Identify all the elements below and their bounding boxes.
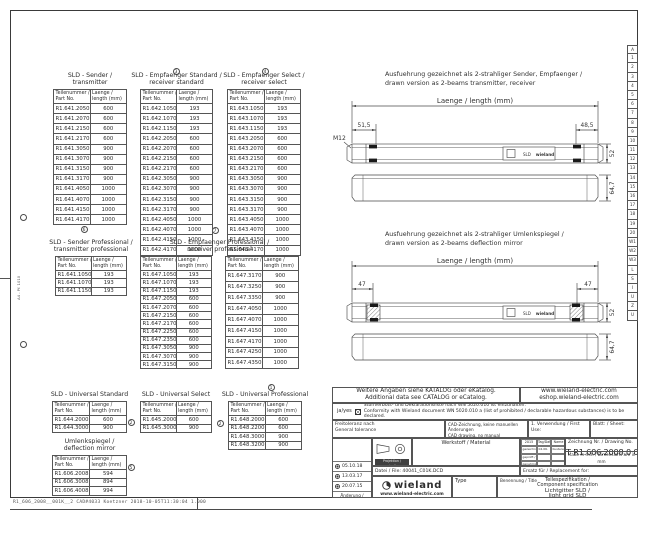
table-row: R1.647.4150.01000 (226, 325, 299, 336)
signature-grid-cell: 04.06. (537, 446, 551, 453)
part-no-cell: R1.643.4070.0 (228, 225, 265, 235)
length-header: Laenge /length (mm) (176, 402, 212, 416)
length-cell: 600 (176, 328, 212, 336)
drawing1-dim-left: 51,5 (358, 123, 371, 129)
table-title-de: SLD - Sender / (68, 72, 112, 79)
part-no-cell: R1.641.1150.0 (56, 287, 92, 295)
part-no-cell: R1.644.3000.0 (53, 424, 90, 433)
drawing1-thread-label: M12 (333, 135, 346, 142)
table-row: R1.647.4250.01000 (226, 347, 299, 358)
length-header: Laenge /length (mm) (176, 257, 212, 271)
part-no-cell: R1.647.1050.0 (141, 271, 177, 279)
circled-ref-marker: 5 (128, 464, 135, 471)
table-row: R1.641.4150.01000 (54, 205, 127, 215)
length-cell: 900 (176, 424, 212, 433)
length-cell: 193 (264, 114, 301, 124)
part-no-cell: R1.641.4170.0 (54, 215, 91, 225)
drawing1-note-de: Ausfuehrung gezeichnet als 2-strahliger … (385, 71, 583, 78)
part-no-cell: R1.642.3150.0 (141, 195, 177, 205)
drawing2-dim-left: 47 (358, 282, 366, 288)
projection-cell: Projektion / projection (372, 438, 412, 466)
plate-brand-label: wieland (536, 152, 554, 157)
table-row: R1.647.2050.0600 (141, 295, 212, 303)
part-no-cell: R1.643.2150.0 (228, 154, 265, 164)
beam-window-icon (369, 159, 377, 163)
revision-row: 13.03.17 (333, 471, 371, 481)
cad-note-de: CAD-Zeichnung, keine manuellen Änderunge… (448, 422, 525, 433)
table-row: R1.643.4070.01000 (228, 225, 301, 235)
table-sld-universal-professional: SLD - Universal Professional Teilenummer… (228, 401, 302, 450)
transmitter-receiver-drawing: Ausfuehrung gezeichnet als 2-strahliger … (333, 63, 638, 215)
margin-format-label: A4 - Pf. 1010 (16, 276, 21, 300)
length-cell: 600 (176, 295, 212, 303)
part-no-cell: R1.641.4150.0 (54, 205, 91, 215)
table-row: R1.643.2070.0600 (228, 144, 301, 154)
table-row: R1.606.4008.0994 (53, 487, 127, 496)
part-no-cell: R1.642.2070.0 (141, 144, 177, 154)
length-header: Laenge /length (mm) (265, 402, 302, 416)
plate-brand-label: wieland (536, 311, 554, 316)
first-angle-projection-icon (373, 440, 411, 458)
length-cell: 594 (90, 470, 127, 479)
length-cell: 600 (177, 134, 213, 144)
table-title-de: SLD - Empfaenger Professional / (170, 239, 269, 246)
length-cell: 193 (91, 287, 127, 295)
table-row: R1.642.3170.0900 (141, 205, 213, 215)
wieland-logo-icon (382, 481, 391, 490)
length-cell: 900 (262, 293, 299, 304)
length-cell: 900 (264, 195, 301, 205)
beam-window-icon (573, 159, 581, 163)
table-row: R1.642.4070.01000 (141, 225, 213, 235)
file-cell: Datei / File: 40041_C01K.DCD (372, 466, 520, 476)
length-cell: 1000 (262, 314, 299, 325)
circled-ref-marker: 6 (81, 226, 88, 233)
punch-hole-bottom (20, 341, 27, 348)
table-row: R1.643.1070.0193 (228, 114, 301, 124)
table-row: R1.642.2050.0600 (141, 134, 213, 144)
signature-grid-header: 2015 (521, 439, 537, 446)
table-row: R1.641.2050.0600 (54, 104, 127, 114)
part-no-cell: R1.642.3170.0 (141, 205, 177, 215)
table-title: SLD - Empfaenger Standard / receiver sta… (131, 72, 221, 86)
part-no-cell: R1.643.3070.0 (228, 184, 265, 194)
length-cell: 1000 (264, 245, 301, 255)
length-cell: 900 (265, 433, 302, 442)
length-cell: 1000 (90, 215, 127, 225)
part-no-header: Teilenummer /Part No. (226, 257, 263, 271)
drawing1-length-label: Laenge / length (mm) (437, 97, 513, 105)
length-header: Laenge /length (mm) (91, 257, 127, 271)
length-cell: 600 (264, 144, 301, 154)
part-no-cell: R1.641.3170.0 (54, 174, 91, 184)
part-no-cell: R1.641.1070.0 (56, 279, 92, 287)
drawing2-dim-right: 47 (584, 282, 592, 288)
part-no-cell: R1.643.3170.0 (228, 205, 265, 215)
revision-row: 20.07.15 (333, 481, 371, 491)
length-cell: 900 (177, 184, 213, 194)
table-title-en: receiver select (223, 79, 304, 86)
drawing-number-cell: Zeichnung Nr. / Drawing No. T R1.606.200… (565, 438, 638, 466)
tolerance-cell: Freitoleranz nach General tolerance (332, 420, 445, 438)
wieland-logo-url: www.wieland-electric.com (373, 492, 451, 497)
revision-date: 20.07.15 (342, 484, 362, 489)
table-row: R1.647.3250.0900 (226, 282, 299, 293)
part-no-header: Teilenummer /Part No. (54, 90, 91, 104)
table-title: SLD - Sender / transmitter (68, 72, 112, 86)
table-row: R1.644.3000.0900 (53, 424, 127, 433)
revision-column: 05.10.1813.03.1720.07.15 Änderung / Revi… (332, 438, 372, 498)
drawing1-note-en: drawn version as 2-beams transmitter, re… (385, 80, 536, 87)
index-strip-cell: A (627, 45, 638, 54)
circled-ref-marker: 2 (128, 419, 135, 426)
material-label: Werkstoff / Material (413, 440, 519, 446)
table-title: SLD - Sender Professional / transmitter … (49, 239, 132, 253)
length-cell: 900 (265, 441, 302, 450)
signature-grid-header: Name (551, 439, 565, 446)
table-title: SLD - Empfaenger Select / receiver selec… (223, 72, 304, 86)
length-cell: 1000 (262, 358, 299, 369)
length-cell: 900 (262, 271, 299, 282)
table-row: R1.641.1070.0193 (56, 279, 127, 287)
tolerance-en: General tolerance (335, 428, 442, 434)
part-no-cell: R1.642.3050.0 (141, 174, 177, 184)
part-no-cell: R1.647.3050.0 (141, 344, 177, 352)
part-no-cell: R1.643.2070.0 (228, 144, 265, 154)
part-no-cell: R1.647.4050.0 (226, 303, 263, 314)
table-row: R1.641.1050.0193 (56, 271, 127, 279)
table-row: R1.642.3050.0900 (141, 174, 213, 184)
table-sld-receiver-standard: SLD - Empfaenger Standard / receiver sta… (140, 89, 213, 256)
part-no-cell: R1.606.4008.0 (53, 487, 90, 496)
table-row: R1.645.2000.0600 (141, 416, 212, 425)
checkbox-checked-icon (355, 409, 361, 415)
table-row: R1.641.2150.0600 (54, 124, 127, 134)
beam-window-icon (370, 304, 378, 307)
part-no-cell: R1.647.2150.0 (141, 312, 177, 320)
revision-date: 13.03.17 (342, 474, 362, 479)
table-row: R1.643.2150.0600 (228, 154, 301, 164)
part-no-cell: R1.644.2000.0 (53, 416, 90, 425)
length-cell: 1000 (177, 225, 213, 235)
eshop-url: eshop.wieland-electric.com (521, 395, 637, 402)
table-sld-receiver-select: SLD - Empfaenger Select / receiver selec… (227, 89, 301, 256)
table-title-de: Umlenkspiegel / (64, 438, 116, 445)
part-no-cell: R1.647.4250.0 (226, 347, 263, 358)
part-no-header: Teilenummer /Part No. (229, 402, 266, 416)
drawing2-height-dim: 52 (610, 309, 616, 317)
beam-window-icon (369, 145, 377, 149)
part-no-cell: R1.641.2170.0 (54, 134, 91, 144)
part-no-cell: R1.643.1050.0 (228, 104, 265, 114)
urls-cell: www.wieland-electric.com eshop.wieland-e… (520, 387, 638, 403)
part-no-cell: R1.647.3250.0 (226, 282, 263, 293)
part-no-cell: R1.648.3000.0 (229, 433, 266, 442)
length-cell: 994 (90, 487, 127, 496)
replacement-cell: Ersatz für / Replacement for: (520, 466, 638, 476)
part-no-cell: R1.643.3050.0 (228, 174, 265, 184)
table-row: R1.641.1150.0193 (56, 287, 127, 295)
table-row: R1.642.1150.0193 (141, 124, 213, 134)
part-no-cell: R1.647.4150.0 (226, 325, 263, 336)
drawing2-note-de: Ausfuehrung gezeichnet als 2-strahliger … (385, 231, 565, 238)
plot-footer-text: R1_606_2008__001K__2 CAD#4033 Koetzner 2… (13, 500, 206, 505)
part-no-cell: R1.642.1070.0 (141, 114, 177, 124)
table-row: R1.641.4170.01000 (54, 215, 127, 225)
part-no-cell: R1.642.2170.0 (141, 164, 177, 174)
length-cell: 894 (90, 478, 127, 487)
revision-date: 05.10.18 (342, 464, 362, 469)
circled-ref-marker: 2 (217, 420, 224, 427)
part-no-cell: R1.642.1050.0 (141, 104, 177, 114)
part-no-cell: R1.641.3050.0 (54, 144, 91, 154)
length-cell: 600 (265, 424, 302, 433)
table-sld-receiver-professional: SLD - Empfaenger Professional / receiver… (140, 256, 299, 369)
table-row: R1.642.3070.0900 (141, 184, 213, 194)
table-row: R1.643.2050.0600 (228, 134, 301, 144)
logo-cell: wieland www.wieland-electric.com (372, 476, 452, 498)
conformity-row: ja/yes Stoffverbots- und Deklarationslis… (332, 403, 638, 420)
drawing-number-label: Zeichnung Nr. / Drawing No. (566, 439, 637, 446)
part-no-cell: R1.647.2170.0 (141, 320, 177, 328)
table-row: R1.641.2070.0600 (54, 114, 127, 124)
length-cell: 600 (265, 416, 302, 425)
table-row: R1.642.2070.0600 (141, 144, 213, 154)
length-cell: 600 (176, 312, 212, 320)
table-row: R1.647.3070.0900 (141, 353, 212, 361)
length-cell: 900 (90, 154, 127, 164)
table-row: R1.641.2170.0600 (54, 134, 127, 144)
length-header: Laenge /length (mm) (90, 402, 127, 416)
part-no-header: Teilenummer /Part No. (141, 257, 177, 271)
table-title: SLD - Universal Select (142, 391, 210, 398)
table-sld-sender-professional: SLD - Sender Professional / transmitter … (55, 256, 127, 296)
part-no-cell: R1.641.2150.0 (54, 124, 91, 134)
part-no-cell: R1.642.4070.0 (141, 225, 177, 235)
table-title-de: SLD - Universal Professional (222, 391, 308, 398)
index-strip-cell: 1 (627, 54, 638, 63)
table-row: R1.643.2170.0600 (228, 164, 301, 174)
signature-grid-cell: gezeichnet / drawn (521, 446, 537, 453)
length-header: Laenge /length (mm) (262, 257, 299, 271)
length-cell: 900 (90, 424, 127, 433)
part-no-cell: R1.642.2150.0 (141, 154, 177, 164)
part-no-cell: R1.647.3170.0 (226, 271, 263, 282)
length-cell: 900 (90, 144, 127, 154)
table-row: R1.647.4070.01000 (226, 314, 299, 325)
table-sld-universal-select: SLD - Universal Select Teilenummer /Part… (140, 401, 212, 433)
length-cell: 600 (176, 416, 212, 425)
length-cell: 900 (90, 164, 127, 174)
file-label: Datei / File: 40041_C01K.DCD (375, 469, 443, 474)
length-cell: 1000 (264, 215, 301, 225)
length-cell: 600 (177, 154, 213, 164)
part-no-cell: R1.648.2200.0 (229, 424, 266, 433)
part-no-cell: R1.647.2350.0 (141, 336, 177, 344)
table-title: SLD - Universal Standard (51, 391, 128, 398)
drawing1-dim-right: 48,5 (581, 123, 594, 129)
part-no-cell: R1.643.2170.0 (228, 164, 265, 174)
length-cell: 900 (262, 282, 299, 293)
length-cell: 1000 (90, 184, 127, 194)
table-title-en: deflection mirror (64, 445, 116, 452)
length-cell: 900 (177, 174, 213, 184)
part-no-cell: R1.648.3200.0 (229, 441, 266, 450)
table-row: R1.647.1150.0193 (141, 287, 212, 295)
table-row: R1.647.3170.0900 (226, 271, 299, 282)
part-no-cell: R1.647.2250.0 (141, 328, 177, 336)
part-no-cell: R1.606.3008.0 (53, 478, 90, 487)
table-row: R1.647.2070.0600 (141, 303, 212, 311)
table-row: R1.642.1050.0193 (141, 104, 213, 114)
table-row: R1.643.3150.0900 (228, 195, 301, 205)
signature-grid: 2015Tag/DateNamegezeichnet / drawn04.06.… (520, 438, 565, 466)
table-row: R1.648.3200.0900 (229, 441, 302, 450)
signature-grid-cell: geprüft / checked (521, 454, 537, 461)
table-title-de: SLD - Universal Standard (51, 391, 128, 398)
length-cell: 193 (177, 114, 213, 124)
length-cell: 600 (264, 154, 301, 164)
first-use-label: 1. Verwendung / First Use: (531, 422, 587, 434)
table-row: R1.641.4050.01000 (54, 184, 127, 194)
length-cell: 600 (264, 134, 301, 144)
table-title-en: transmitter (68, 79, 112, 86)
length-cell: 1000 (177, 215, 213, 225)
part-no-cell: R1.643.2050.0 (228, 134, 265, 144)
table-row: R1.645.3000.0900 (141, 424, 212, 433)
part-no-cell: R1.643.1150.0 (228, 124, 265, 134)
part-no-header: Teilenummer /Part No. (141, 402, 177, 416)
length-cell: 1000 (90, 205, 127, 215)
part-no-header: Teilenummer /Part No. (56, 257, 92, 271)
table-row: R1.647.4050.01000 (226, 303, 299, 314)
part-no-cell: R1.647.3150.0 (141, 361, 177, 369)
beam-window-icon (573, 145, 581, 149)
table-row: R1.647.2150.0600 (141, 312, 212, 320)
part-no-cell: R1.647.4170.0 (226, 336, 263, 347)
revision-caption: Änderung / Revision (333, 491, 371, 498)
table-row: R1.643.3170.0900 (228, 205, 301, 215)
catalog-note-cell: Weitere Angaben siehe KATALOG oder eKata… (332, 387, 520, 403)
first-use-cell: 1. Verwendung / First Use: (528, 420, 590, 438)
table-title: SLD - Empfaenger Professional / receiver… (170, 239, 269, 253)
length-cell: 600 (176, 303, 212, 311)
revision-row: 05.10.18 (333, 461, 371, 471)
length-cell: 1000 (264, 225, 301, 235)
catalog-note-de: Weitere Angaben siehe KATALOG oder eKata… (333, 388, 519, 395)
part-no-cell: R1.647.2050.0 (141, 295, 177, 303)
table-row: R1.641.4070.01000 (54, 195, 127, 205)
beam-window-icon (572, 304, 580, 307)
part-no-cell: R1.645.2000.0 (141, 416, 177, 425)
part-no-cell: R1.641.3150.0 (54, 164, 91, 174)
part-no-cell: R1.647.4070.0 (226, 314, 263, 325)
length-cell: 1000 (262, 336, 299, 347)
length-cell: 600 (90, 416, 127, 425)
drawing2-length-label: Laenge / length (mm) (437, 257, 513, 265)
material-cell: Werkstoff / Material (412, 438, 520, 466)
title-label: Benennung / Title (500, 478, 537, 483)
length-cell: 600 (90, 114, 127, 124)
part-no-header: Teilenummer /Part No. (141, 90, 177, 104)
table-row: R1.647.1070.0193 (141, 279, 212, 287)
part-no-header: Teilenummer /Part No. (53, 402, 90, 416)
table-title: Umlenkspiegel / deflection mirror (64, 438, 116, 452)
table-title-de: SLD - Empfaenger Standard / (131, 72, 221, 79)
length-cell: 193 (264, 124, 301, 134)
plate-type-label: SLD (523, 311, 531, 316)
part-no-cell: R1.647.1150.0 (141, 287, 177, 295)
sheet-cell: Blatt: / Sheet: (590, 420, 638, 438)
table-row: R1.648.2200.0600 (229, 424, 302, 433)
table-row: R1.647.4350.01000 (226, 358, 299, 369)
cad-note-cell: CAD-Zeichnung, keine manuellen Änderunge… (445, 420, 528, 438)
projection-label: Projektion / projection (375, 459, 409, 466)
length-cell: 193 (177, 124, 213, 134)
table-row: R1.647.4170.01000 (226, 336, 299, 347)
length-cell: 600 (176, 320, 212, 328)
plate-type-label: SLD (523, 152, 531, 157)
length-cell: 900 (177, 195, 213, 205)
part-no-cell: R1.647.2070.0 (141, 303, 177, 311)
wieland-logo: wieland (373, 480, 451, 491)
part-no-cell: R1.641.4050.0 (54, 184, 91, 194)
catalog-note-en: Additional data see CATALOG or eCatalog. (333, 395, 519, 402)
length-header: Laenge /length (mm) (264, 90, 301, 104)
revision-mark-icon (335, 464, 340, 469)
table-row: R1.647.3150.0900 (141, 361, 212, 369)
length-cell: 900 (90, 174, 127, 184)
table-row: R1.641.3050.0900 (54, 144, 127, 154)
signature-grid-header: Tag/Date (537, 439, 551, 446)
table-row: R1.641.3070.0900 (54, 154, 127, 164)
length-cell: 1000 (90, 195, 127, 205)
table-deflection-mirror: Umlenkspiegel / deflection mirror Teilen… (52, 455, 127, 496)
length-cell: 193 (176, 279, 212, 287)
length-cell: 193 (176, 287, 212, 295)
table-row: R1.642.3150.0900 (141, 195, 213, 205)
part-no-cell: R1.647.4350.0 (226, 358, 263, 369)
length-cell: 900 (177, 205, 213, 215)
drawing1-depth-dim: 64,7 (610, 181, 616, 194)
revision-mark-icon (335, 484, 340, 489)
part-no-header: Teilenummer /Part No. (228, 90, 265, 104)
revision-rows: 05.10.1813.03.1720.07.15 (333, 461, 371, 491)
part-no-header: Teilenummer /Part No. (53, 456, 90, 470)
length-cell: 900 (176, 344, 212, 352)
signature-grid-cell (551, 454, 565, 461)
table-title-en: receiver professional (170, 246, 269, 253)
length-cell: 600 (177, 144, 213, 154)
beam-window-icon (370, 318, 378, 321)
length-cell: 900 (264, 205, 301, 215)
type-cell: Type (452, 476, 497, 498)
table-row: R1.641.3150.0900 (54, 164, 127, 174)
part-no-cell: R1.641.3070.0 (54, 154, 91, 164)
table-title-en: transmitter professional (49, 246, 132, 253)
table-row: R1.648.2000.0600 (229, 416, 302, 425)
title-cell: Benennung / Title Teilespezifikation / C… (497, 476, 638, 498)
table-row: R1.643.1150.0193 (228, 124, 301, 134)
beam-window-icon (572, 318, 580, 321)
sheet-label: Blatt: / Sheet: (593, 422, 635, 428)
part-no-cell: R1.648.2000.0 (229, 416, 266, 425)
length-header: Laenge /length (mm) (90, 456, 127, 470)
length-cell: 1000 (262, 303, 299, 314)
part-no-cell: R1.641.1050.0 (56, 271, 92, 279)
table-row: R1.647.3050.0900 (141, 344, 212, 352)
length-cell: 1000 (262, 347, 299, 358)
